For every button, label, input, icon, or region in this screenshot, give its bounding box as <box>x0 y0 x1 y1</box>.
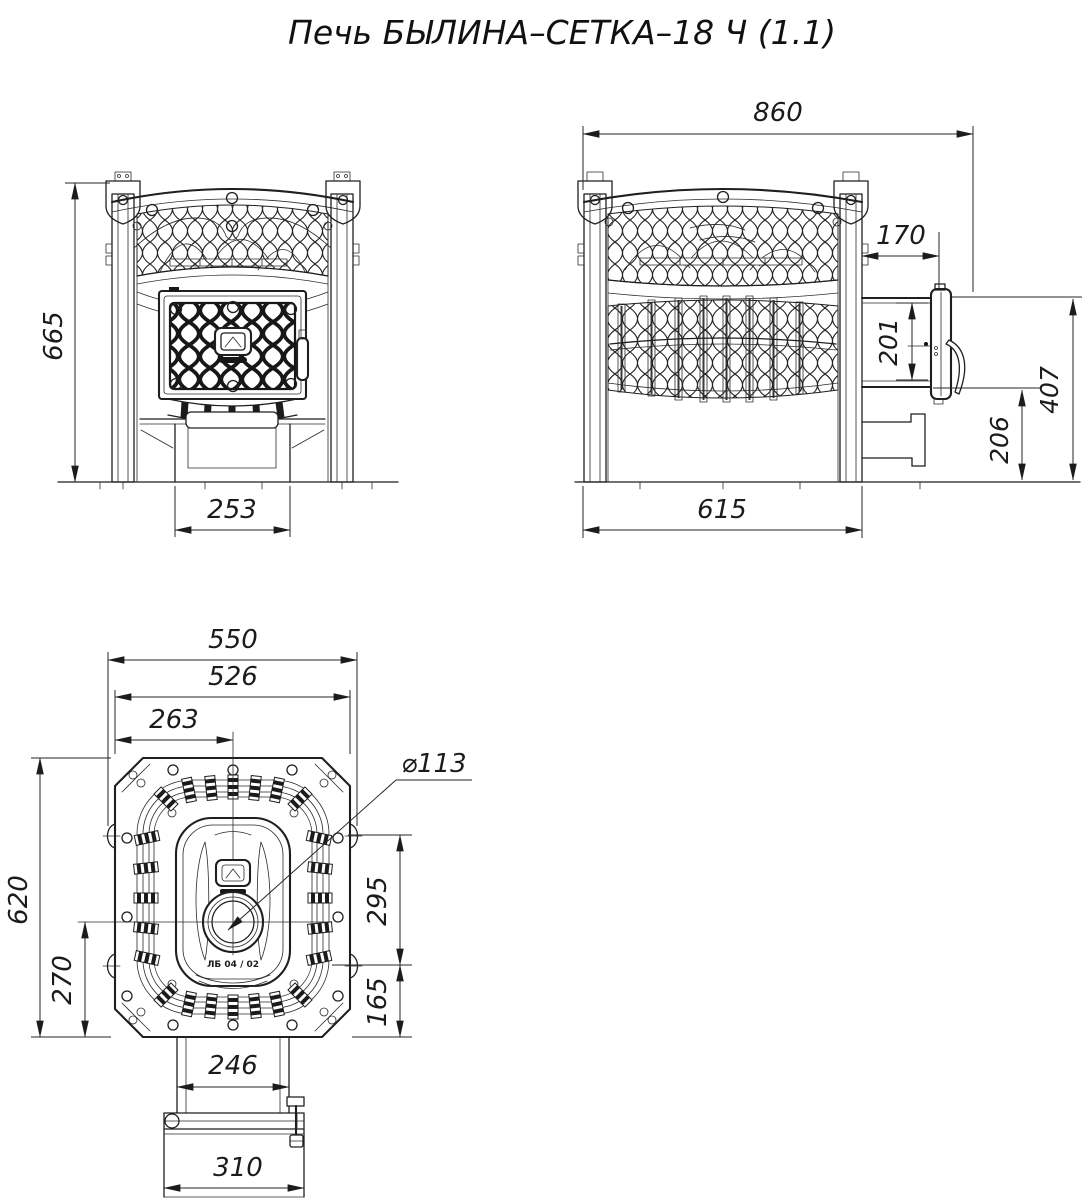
dim-top-chimney-to-rear: 270 <box>48 922 85 1037</box>
door-marking: ЛБ 04 / 02 <box>207 960 259 970</box>
dim-front-base-width: 253 <box>175 486 290 537</box>
svg-text:⌀113: ⌀113 <box>401 749 466 779</box>
svg-text:201: 201 <box>874 318 903 366</box>
dim-side-tunnel-length: 170 <box>862 221 939 288</box>
svg-text:620: 620 <box>4 875 34 925</box>
svg-text:407: 407 <box>1035 366 1064 414</box>
top-view: ЛБ 04 / 02 <box>4 625 472 1197</box>
front-base <box>140 412 325 482</box>
dim-side-tunnel-door-height: 201 <box>874 303 928 380</box>
front-firebox-door <box>159 287 308 399</box>
svg-text:295: 295 <box>363 876 393 926</box>
svg-text:253: 253 <box>207 495 257 525</box>
front-view: 665 253 <box>39 172 398 537</box>
dim-top-door-width: 310 <box>164 1153 304 1188</box>
svg-text:270: 270 <box>48 955 78 1005</box>
side-ash-drawer <box>862 414 925 466</box>
svg-text:526: 526 <box>208 662 258 692</box>
front-mesh <box>137 205 328 276</box>
svg-text:165: 165 <box>363 977 393 1027</box>
svg-text:550: 550 <box>208 625 258 655</box>
side-lower-mesh <box>608 300 838 398</box>
dim-top-chimney-offset: 263 <box>115 705 233 740</box>
technical-drawing-page: Печь БЫЛИНА–СЕТКА–18 Ч (1.1) <box>0 0 1084 1200</box>
svg-text:263: 263 <box>149 705 199 735</box>
side-upper-mesh <box>608 206 838 286</box>
svg-text:665: 665 <box>39 311 69 361</box>
side-view: 860 615 170 201 206 407 <box>575 98 1082 538</box>
svg-text:310: 310 <box>213 1153 263 1183</box>
brand-emblem <box>215 328 251 363</box>
dim-side-body-length: 615 <box>583 486 862 538</box>
svg-text:206: 206 <box>985 416 1014 464</box>
dim-top-rear-section: 165 <box>352 965 412 1037</box>
dim-side-tunnel-bottom-height: 206 <box>933 388 1042 480</box>
dim-top-tunnel-width: 246 <box>177 1051 289 1087</box>
dim-front-height: 665 <box>39 183 110 482</box>
door-handle <box>297 338 308 380</box>
svg-text:246: 246 <box>208 1051 258 1081</box>
svg-text:170: 170 <box>876 221 926 251</box>
drawing-title: Печь БЫЛИНА–СЕТКА–18 Ч (1.1) <box>288 13 836 52</box>
svg-text:615: 615 <box>697 495 747 525</box>
svg-text:860: 860 <box>753 98 803 128</box>
